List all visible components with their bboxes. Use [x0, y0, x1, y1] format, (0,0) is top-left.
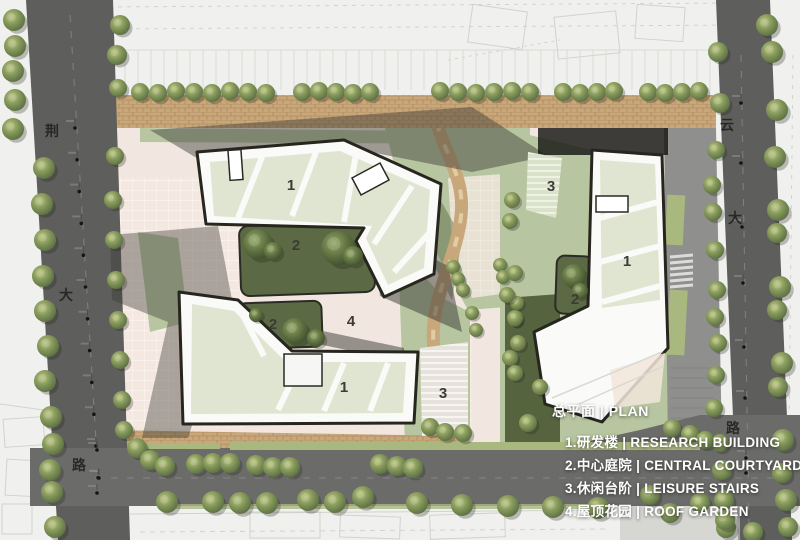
leisure-stairs-east [526, 152, 562, 218]
legend-item-research-building: 1.研发楼 | RESEARCH BUILDING [565, 431, 800, 454]
label-courtyard-2-east: 2 [571, 291, 579, 308]
skylight [596, 196, 628, 212]
legend-title: 总平面 | PLAN [552, 401, 800, 421]
label-stairs-3-west: 3 [439, 385, 447, 402]
site-plan: 1 2 2 4 1 3 3 2 1 荆 大 路 云 大 路 总平面 | PLAN… [0, 0, 800, 540]
right-road-name-char-1: 云 [720, 117, 734, 133]
left-road-name-char-1: 荆 [45, 123, 59, 139]
legend-items: 1.研发楼 | RESEARCH BUILDING 2.中心庭院 | CENTR… [565, 431, 800, 523]
legend-item-leisure-stairs: 3.休闲台阶 | LEISURE STAIRS [565, 477, 800, 500]
right-road-name-char-2: 大 [728, 210, 742, 226]
legend: 总平面 | PLAN 1.研发楼 | RESEARCH BUILDING 2.中… [552, 401, 800, 523]
legend-item-roof-garden: 4.屋顶花园 | ROOF GARDEN [565, 500, 800, 523]
skylight [284, 354, 322, 386]
verge-strip [666, 290, 687, 356]
label-courtyard-2-north: 2 [292, 237, 300, 254]
label-building-1-east: 1 [623, 253, 631, 270]
verge-strip [665, 195, 686, 246]
legend-item-central-courtyard: 2.中心庭院 | CENTRAL COURTYARD [565, 454, 800, 477]
skylight [228, 150, 243, 181]
left-road-name-char-2: 大 [59, 287, 73, 303]
label-courtyard-2-south: 2 [269, 316, 277, 333]
left-road-name-char-3: 路 [72, 457, 87, 473]
label-building-1-north: 1 [287, 177, 295, 194]
label-stairs-3-east: 3 [547, 178, 555, 195]
label-building-1-south: 1 [340, 379, 348, 396]
label-roof-garden-4: 4 [347, 313, 356, 330]
